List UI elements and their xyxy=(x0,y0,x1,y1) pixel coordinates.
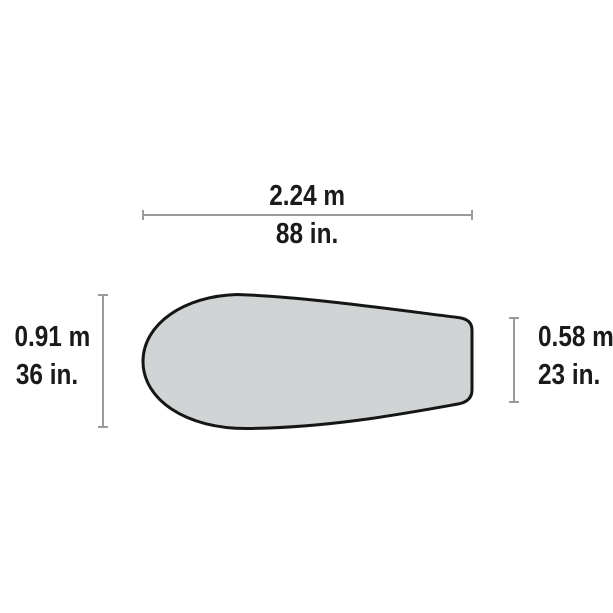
head-height-imperial-value: 36 in. xyxy=(16,356,78,394)
footprint-shape xyxy=(143,295,472,429)
head-height-dimension-label: 0.91 m 36 in. xyxy=(0,318,78,394)
foot-height-metric-line: 0.58 m xyxy=(538,318,613,356)
width-dimension-label: 2.24 m 88 in. xyxy=(142,177,472,253)
width-metric-line: 2.24 m xyxy=(142,177,472,215)
head-height-metric-value: 0.91 m xyxy=(14,318,90,356)
foot-height-dimension-line xyxy=(509,318,519,402)
width-imperial-line: 88 in. xyxy=(142,215,472,253)
foot-height-metric-value: 0.58 m xyxy=(538,318,613,356)
dimension-diagram: 2.24 m 88 in. 0.91 m 36 in. 0.58 m 23 in… xyxy=(0,0,613,613)
head-height-dimension-line xyxy=(98,295,108,427)
foot-height-imperial-line: 23 in. xyxy=(538,356,613,394)
foot-height-dimension-label: 0.58 m 23 in. xyxy=(538,318,613,394)
width-imperial-value: 88 in. xyxy=(276,215,338,253)
head-height-imperial-line: 36 in. xyxy=(0,356,78,394)
width-metric-value: 2.24 m xyxy=(269,177,345,215)
head-height-metric-line: 0.91 m xyxy=(0,318,78,356)
foot-height-imperial-value: 23 in. xyxy=(538,356,600,394)
diagram-graphics xyxy=(0,0,613,613)
